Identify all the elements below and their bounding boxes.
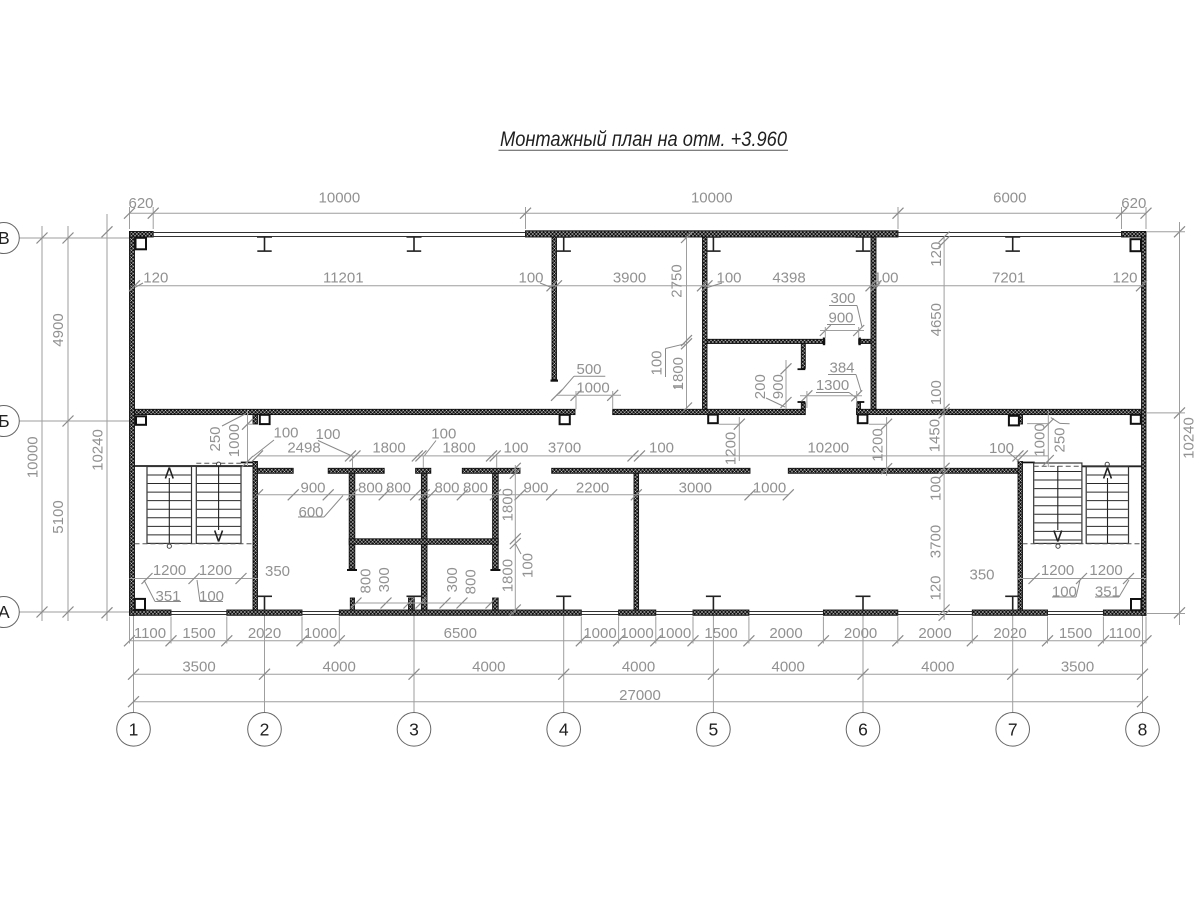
svg-text:1200: 1200 [199,562,232,579]
svg-text:3: 3 [409,719,419,739]
svg-text:250: 250 [207,426,224,451]
svg-text:В: В [0,228,10,248]
svg-text:6: 6 [858,719,868,739]
svg-text:100: 100 [503,440,528,457]
svg-text:2750: 2750 [669,264,686,297]
svg-text:900: 900 [523,480,548,497]
svg-text:100: 100 [928,380,945,405]
svg-text:2: 2 [260,719,270,739]
svg-text:7: 7 [1008,719,1018,739]
svg-text:100: 100 [199,588,224,605]
svg-text:250: 250 [1052,427,1069,452]
svg-text:10200: 10200 [807,440,849,457]
svg-text:1500: 1500 [182,625,215,642]
svg-text:А: А [0,602,10,622]
svg-text:350: 350 [265,563,290,580]
svg-text:11201: 11201 [323,270,364,287]
svg-text:7201: 7201 [992,270,1025,287]
svg-text:2200: 2200 [576,480,609,497]
svg-text:351: 351 [1095,584,1120,601]
svg-text:2020: 2020 [993,625,1026,642]
svg-text:300: 300 [830,290,855,307]
svg-text:5100: 5100 [50,500,67,533]
svg-text:1: 1 [129,719,139,739]
svg-text:1800: 1800 [670,357,687,390]
svg-text:10000: 10000 [25,436,42,478]
svg-text:1200: 1200 [722,432,739,465]
svg-text:1200: 1200 [153,562,186,579]
svg-text:4: 4 [559,719,569,739]
svg-text:120: 120 [928,242,945,267]
svg-text:100: 100 [273,425,298,442]
svg-text:1000: 1000 [1032,423,1049,456]
svg-text:100: 100 [649,440,674,457]
svg-text:100: 100 [431,426,456,443]
svg-text:1100: 1100 [1109,625,1141,642]
svg-text:4650: 4650 [928,303,945,336]
svg-text:350: 350 [969,567,994,584]
svg-text:8: 8 [1138,719,1148,739]
svg-text:620: 620 [128,195,153,212]
svg-text:384: 384 [829,360,854,377]
svg-text:3700: 3700 [928,525,945,558]
svg-text:100: 100 [1052,584,1077,601]
svg-text:1000: 1000 [304,625,337,642]
svg-text:1100: 1100 [134,625,166,642]
svg-text:10240: 10240 [90,429,107,471]
svg-text:1300: 1300 [816,377,849,394]
svg-text:1000: 1000 [583,625,616,642]
svg-text:4000: 4000 [772,659,805,676]
svg-text:1000: 1000 [226,424,243,457]
svg-text:100: 100 [519,553,536,578]
svg-text:800: 800 [386,480,411,497]
svg-text:1500: 1500 [1059,625,1092,642]
svg-text:120: 120 [1112,270,1137,287]
svg-text:3500: 3500 [182,659,215,676]
svg-text:1000: 1000 [753,480,786,497]
svg-text:1800: 1800 [372,440,405,457]
svg-text:200: 200 [752,374,769,399]
svg-text:2020: 2020 [248,625,281,642]
svg-text:4900: 4900 [50,313,67,346]
svg-text:120: 120 [928,575,945,600]
svg-text:4000: 4000 [323,659,356,676]
svg-text:1000: 1000 [658,625,691,642]
svg-text:900: 900 [770,374,787,399]
svg-text:500: 500 [576,361,601,378]
svg-text:3500: 3500 [1061,659,1094,676]
svg-text:100: 100 [315,426,340,443]
svg-text:2000: 2000 [918,625,951,642]
svg-text:3000: 3000 [679,480,712,497]
svg-text:300: 300 [444,567,461,592]
svg-text:800: 800 [358,568,375,593]
svg-text:3700: 3700 [548,440,581,457]
svg-text:100: 100 [649,350,666,375]
svg-text:2000: 2000 [769,625,802,642]
svg-text:4000: 4000 [472,659,505,676]
svg-text:1200: 1200 [1089,562,1122,579]
svg-text:1800: 1800 [499,559,516,592]
svg-text:6000: 6000 [993,190,1026,207]
svg-text:3900: 3900 [613,270,646,287]
svg-text:351: 351 [155,588,180,605]
svg-text:900: 900 [300,480,325,497]
svg-text:4398: 4398 [772,270,805,287]
svg-text:6500: 6500 [444,625,477,642]
svg-text:800: 800 [434,480,459,497]
svg-text:300: 300 [376,567,393,592]
svg-text:100: 100 [873,270,898,287]
svg-text:10000: 10000 [691,190,733,207]
svg-text:10000: 10000 [319,190,361,207]
svg-text:1500: 1500 [704,625,737,642]
svg-text:Б: Б [0,411,10,431]
svg-text:900: 900 [828,310,853,327]
svg-text:800: 800 [463,480,488,497]
svg-text:100: 100 [928,476,945,501]
svg-text:1000: 1000 [576,380,609,397]
svg-text:120: 120 [143,270,168,287]
svg-text:2000: 2000 [844,625,877,642]
svg-text:800: 800 [462,569,479,594]
svg-text:600: 600 [298,504,323,521]
svg-text:27000: 27000 [619,687,661,704]
svg-text:620: 620 [1121,195,1146,212]
svg-text:1800: 1800 [499,488,516,521]
svg-text:Монтажный план на отм. +3.960: Монтажный план на отм. +3.960 [500,128,787,151]
svg-text:1200: 1200 [870,428,887,461]
svg-text:4000: 4000 [622,659,655,676]
svg-text:1200: 1200 [1041,562,1074,579]
svg-text:100: 100 [518,270,543,287]
svg-text:4000: 4000 [921,659,954,676]
svg-text:1450: 1450 [927,419,944,452]
svg-text:5: 5 [709,719,719,739]
svg-text:800: 800 [358,480,383,497]
svg-text:10240: 10240 [1181,417,1198,459]
svg-text:1000: 1000 [620,625,653,642]
